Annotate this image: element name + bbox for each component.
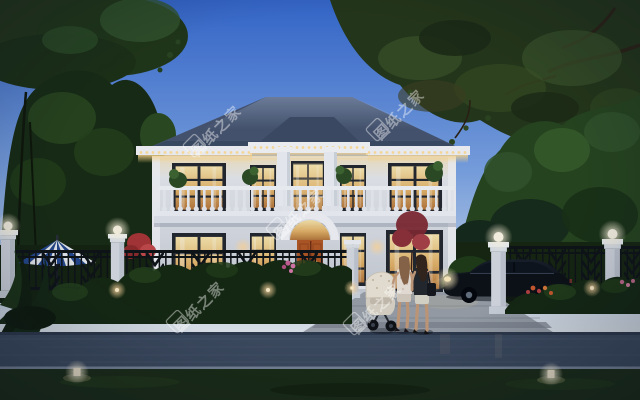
scene-canvas: 图纸之家 图纸之家 图纸之家 图纸之家 图纸之家 bbox=[0, 0, 640, 400]
villa-dusk-rendering: 图纸之家 图纸之家 图纸之家 图纸之家 图纸之家 bbox=[0, 0, 640, 400]
